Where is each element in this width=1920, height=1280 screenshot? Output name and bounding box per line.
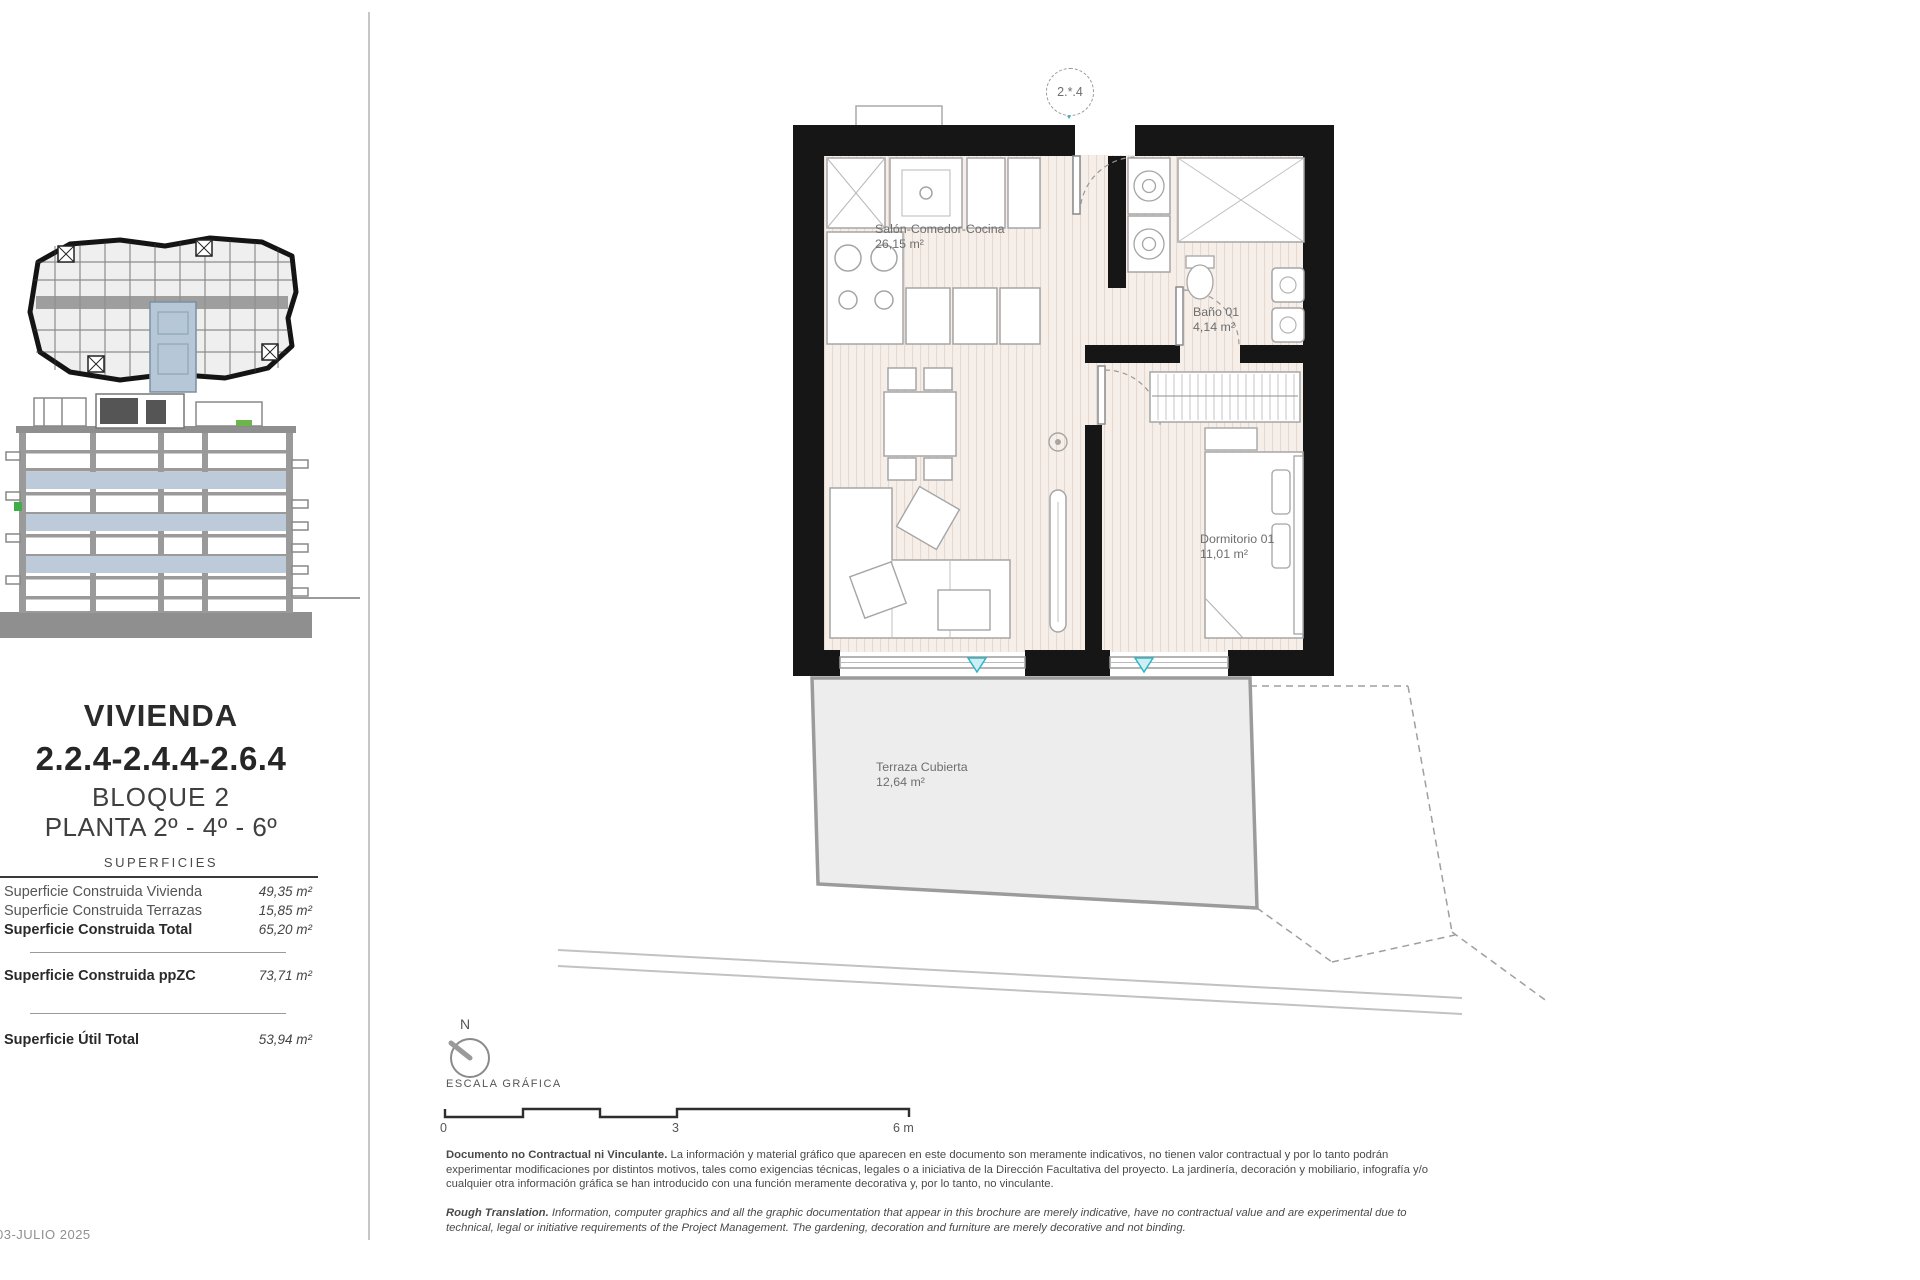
table-row: Superficie Construida Vivienda 49,35 m² [4,884,312,900]
disclaimer-spanish: Documento no Contractual ni Vinculante. … [446,1148,1431,1192]
terrace-outline [812,678,1257,908]
disclaimer-english-lead: Rough Translation. [446,1207,549,1219]
scale-tick-6: 6 m [893,1121,914,1135]
disclaimer-spanish-lead: Documento no Contractual ni Vinculante. [446,1149,667,1161]
section-highlighted-floors [26,472,286,573]
keyplan-drawing [30,238,296,392]
document-date: 03-JULIO 2025 [0,1227,91,1242]
row-label: Superficie Útil Total [4,1032,139,1048]
row-value: 49,35 m² [259,884,312,900]
page-graphics [0,0,1920,1280]
disclaimer-english-body: Information, computer graphics and all t… [446,1207,1407,1234]
scale-bar [445,1109,909,1117]
room-label-terrace: Terraza Cubierta 12,64 m² [876,760,968,790]
unit-code: 2.2.4-2.4.4-2.6.4 [0,740,322,778]
room-label-living: Salón-Comedor-Cocina 26,15 m² [875,222,1004,252]
north-arrow-icon [451,1039,489,1077]
row-label: Superficie Construida Total [4,922,192,938]
north-label: N [460,1016,470,1032]
row-value: 15,85 m² [259,903,312,919]
table-top-rule [0,876,318,878]
block-subtitle: BLOQUE 2 [0,782,322,813]
table-row: Superficie Construida Terrazas 15,85 m² [4,903,312,919]
scale-tick-0: 0 [440,1121,447,1135]
table-row: Superficie Útil Total 53,94 m² [4,1032,312,1048]
table-divider [30,952,286,953]
section-roof-green-accent [236,420,252,426]
row-label: Superficie Construida Terrazas [4,903,202,919]
scale-tick-3: 3 [672,1121,679,1135]
disclaimer-english: Rough Translation. Information, computer… [446,1206,1431,1235]
room-label-bathroom: Baño 01 4,14 m² [1193,305,1239,335]
row-label: Superficie Construida Vivienda [4,884,202,900]
room-label-bedroom: Dormitorio 01 11,01 m² [1200,532,1274,562]
table-row: Superficie Construida ppZC 73,71 m² [4,968,312,984]
column-divider [368,12,370,1240]
row-value: 53,94 m² [259,1032,312,1048]
row-value: 73,71 m² [259,968,312,984]
table-row: Superficie Construida Total 65,20 m² [4,922,312,938]
floor-plan-drawing [558,106,1548,1014]
table-divider [30,1013,286,1014]
building-section-drawing [0,394,360,638]
scale-title: ESCALA GRÁFICA [446,1078,562,1090]
section-green-marker [14,502,22,511]
unit-badge: 2.*.4 [1046,68,1094,116]
row-value: 65,20 m² [259,922,312,938]
row-label: Superficie Construida ppZC [4,968,196,984]
brochure-page: VIVIENDA 2.2.4-2.4.4-2.6.4 BLOQUE 2 PLAN… [0,0,1920,1280]
areas-table-header: SUPERFICIES [0,855,322,870]
floor-subtitle: PLANTA 2º - 4º - 6º [0,812,322,843]
keyplan-highlighted-unit [150,302,196,392]
wardrobe [1150,372,1300,422]
unit-title: VIVIENDA [0,698,322,734]
